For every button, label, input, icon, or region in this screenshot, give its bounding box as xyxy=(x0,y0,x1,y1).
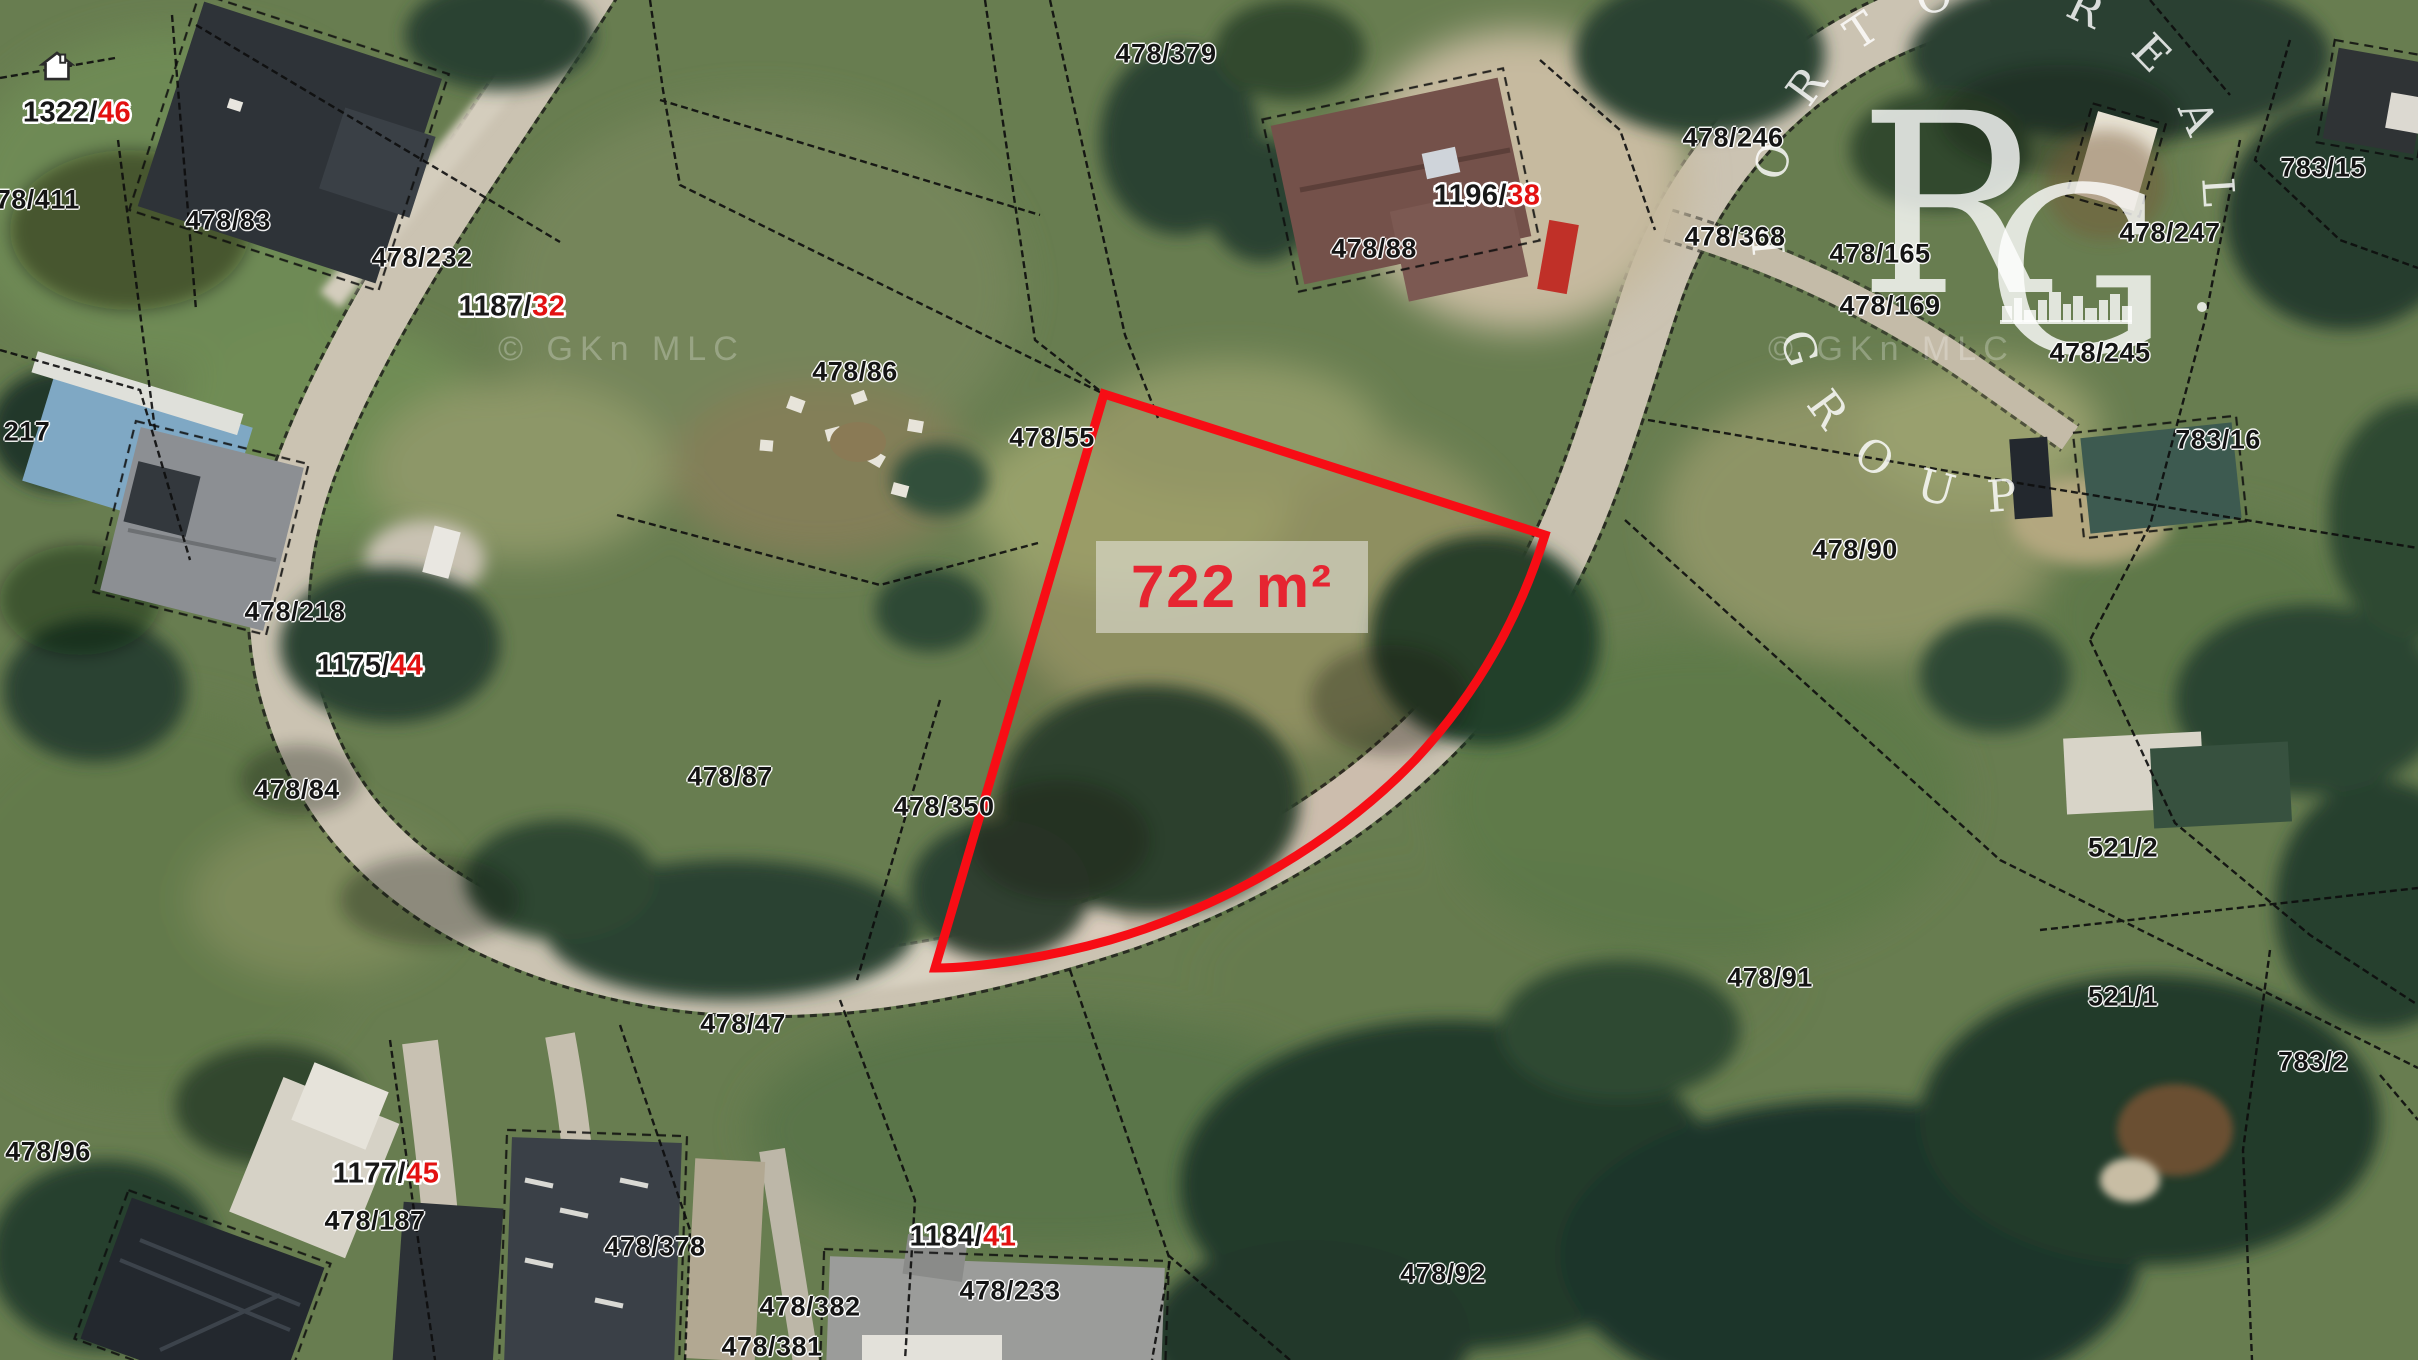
parcel-label: 478/47 xyxy=(700,1011,786,1038)
parcel-label: 478/379 xyxy=(1115,41,1216,68)
parcel-label: 478/91 xyxy=(1727,965,1813,992)
parcel-label: 478/88 xyxy=(1331,236,1417,263)
parcel-label: 478/84 xyxy=(254,777,340,804)
parcel-label: 478/381 xyxy=(721,1334,822,1360)
parcel-label: 478/382 xyxy=(759,1294,860,1321)
parcel-label: 478/55 xyxy=(1009,425,1095,452)
parcel-label: 478/169 xyxy=(1839,293,1940,320)
parcel-label: 478/378 xyxy=(604,1234,705,1261)
parcel-label: 478/233 xyxy=(959,1278,1060,1305)
parcel-label: 783/15 xyxy=(2280,155,2366,182)
parcel-label: 478/187 xyxy=(324,1208,425,1235)
parcel-label: 478/411 xyxy=(0,187,80,214)
house-icon xyxy=(36,48,78,84)
parcel-label: 217 xyxy=(4,419,51,446)
parcel-label: 521/1 xyxy=(2088,984,2158,1011)
parcel-label: 478/368 xyxy=(1684,224,1785,251)
parcel-label: 478/232 xyxy=(371,245,472,272)
parcel-label: 478/350 xyxy=(893,794,994,821)
parcel-label: 478/86 xyxy=(812,359,898,386)
copyright-watermark: © GKn MLC xyxy=(498,330,745,369)
house-number-label: 1322/46 xyxy=(23,99,131,128)
parcel-label: 478/96 xyxy=(5,1139,91,1166)
parcel-label: 521/2 xyxy=(2088,835,2158,862)
house-number-label: 1196/38 xyxy=(1434,182,1541,211)
house-number-label: 1177/45 xyxy=(333,1160,440,1189)
parcel-label: 478/83 xyxy=(185,208,271,235)
parcel-label: 478/87 xyxy=(687,764,773,791)
parcel-label: 478/218 xyxy=(244,599,345,626)
parcel-label: 478/247 xyxy=(2119,220,2220,247)
parcel-label: 478/165 xyxy=(1829,241,1930,268)
house-number-label: 1187/32 xyxy=(459,293,566,322)
parcel-label: 478/245 xyxy=(2049,340,2150,367)
parcel-area-value: 722 m² xyxy=(1131,557,1333,617)
parcel-area-label: 722 m² xyxy=(1096,541,1368,633)
copyright-watermark: © GKn MLC xyxy=(1768,330,2015,369)
parcel-label: 783/2 xyxy=(2278,1049,2348,1076)
logo-dot xyxy=(2197,302,2207,312)
parcel-label: 783/16 xyxy=(2175,427,2261,454)
house-number-label: 1184/41 xyxy=(910,1223,1017,1252)
parcel-label: 478/90 xyxy=(1812,537,1898,564)
parcel-label: 478/246 xyxy=(1682,125,1783,152)
aerial-cadastral-map: R G P O R T O • R E A L G R O U P 478/41… xyxy=(0,0,2418,1360)
parcel-label: 478/92 xyxy=(1400,1261,1486,1288)
house-number-label: 1175/44 xyxy=(317,652,424,681)
